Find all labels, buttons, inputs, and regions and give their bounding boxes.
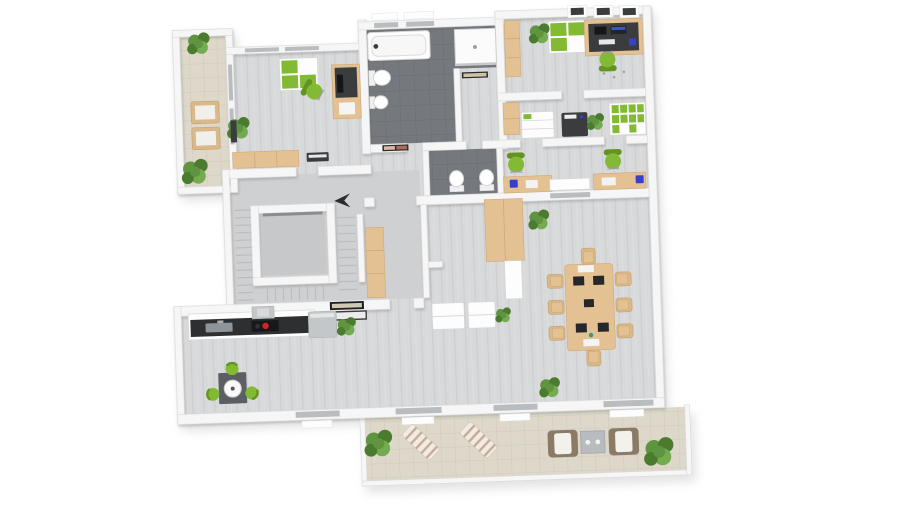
toilet [449, 170, 464, 191]
bistro-table [218, 372, 247, 404]
fridge [308, 311, 337, 338]
monitor [594, 26, 606, 34]
monitor [337, 75, 344, 93]
conference-chair [581, 248, 596, 264]
wall-corridor-south-stub [364, 198, 374, 207]
green-white-cabinet [548, 20, 587, 53]
window-sill-bathroom-1 [372, 13, 398, 21]
floor-plan-image [0, 0, 900, 506]
blue-accessory [629, 38, 636, 45]
conference-chair [547, 274, 563, 289]
cooktop [251, 320, 278, 332]
desk [331, 64, 361, 119]
conference-chair [549, 326, 565, 341]
wall-alcove-stub [428, 261, 442, 267]
low-shelf [521, 111, 554, 138]
desk [584, 18, 643, 56]
skylight [594, 5, 613, 18]
wall-kitchen-north-b [414, 298, 424, 308]
hall-wardrobe [365, 227, 385, 298]
window-sill-south-2 [402, 417, 434, 425]
wall-stair-north-b [318, 165, 371, 176]
floor-plan-render [0, 0, 900, 506]
wooden-chair [192, 127, 221, 150]
toilet [369, 70, 391, 86]
wall-corridor-north-e [626, 135, 647, 144]
papers [583, 339, 599, 347]
picture-frame [462, 72, 488, 79]
monitor [610, 26, 626, 35]
bench [432, 303, 465, 330]
window-bathroom-1 [374, 22, 398, 28]
armchair [608, 427, 639, 455]
bidet [370, 96, 388, 110]
wall-corridor-north-b [422, 141, 466, 151]
skylight [568, 5, 587, 18]
conference-chair [548, 300, 564, 315]
binder-shelf [609, 102, 646, 135]
window-bathroom-2 [406, 21, 434, 27]
wood-wardrobe [503, 102, 520, 135]
white-cabinet [504, 260, 522, 299]
window-sill-south-3 [500, 413, 530, 421]
wall-wc-east [496, 148, 504, 193]
skylight [620, 5, 639, 18]
desk [504, 175, 553, 193]
elevator-cab [261, 211, 327, 275]
wood-sideboard [232, 150, 299, 168]
keyboard-device [307, 152, 329, 162]
desk-bin [636, 175, 644, 183]
wall-panel [230, 120, 237, 142]
window-sill-south-1 [302, 420, 332, 428]
wall-corridor-north-c [482, 139, 520, 148]
wooden-chair [191, 101, 220, 124]
conference-chair [617, 324, 633, 339]
wood-wardrobe [484, 198, 524, 261]
papers [602, 177, 616, 185]
bathtub [367, 31, 430, 61]
desk [593, 172, 646, 190]
wall-wc-west [423, 151, 431, 196]
conference-chair [587, 350, 602, 366]
extractor-hood [252, 306, 274, 319]
desk-bin [510, 180, 518, 188]
window-sill-unit [550, 178, 590, 190]
toilet [479, 169, 494, 190]
conference-chair [615, 272, 631, 287]
copier [561, 112, 588, 137]
armchair [547, 430, 578, 458]
picture-frame [382, 144, 408, 151]
papers [578, 265, 594, 273]
shower [454, 28, 496, 65]
keyboard [599, 39, 615, 45]
wood-wardrobe [504, 20, 521, 76]
bench [468, 301, 496, 328]
papers [339, 102, 355, 115]
side-table [580, 431, 605, 454]
conference-chair [616, 298, 632, 313]
window-sill-bathroom-2 [404, 11, 434, 19]
window-sill-south-4 [610, 409, 644, 417]
papers [526, 180, 538, 188]
picture-frame [330, 301, 364, 310]
